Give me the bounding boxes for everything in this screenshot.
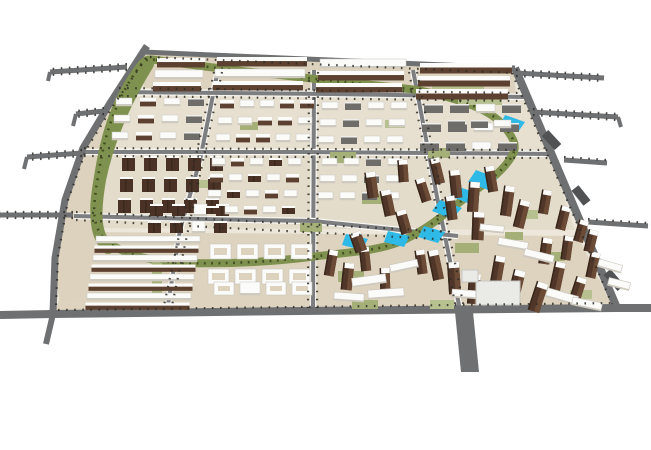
building-shade: [344, 164, 359, 166]
branch-road: [564, 160, 607, 163]
lowrise-roof: [256, 134, 270, 138]
branch-road: [533, 112, 618, 117]
building-shade: [389, 125, 405, 127]
building-shade: [160, 138, 176, 140]
building-shade: [96, 241, 200, 243]
lowrise-roof: [280, 100, 294, 104]
slab-rooftop: [227, 190, 240, 192]
slab-stripe: [219, 223, 220, 233]
courtyard-inner: [214, 248, 227, 255]
slab-building: [144, 156, 157, 171]
building-highlight: [471, 120, 488, 122]
lowrise-facade: [316, 87, 402, 92]
courtyard-inner: [239, 273, 252, 280]
courtyard-inner: [268, 248, 281, 255]
slab-stripe: [274, 160, 275, 166]
lowrise-roof: [138, 115, 154, 119]
lowrise-facade: [286, 178, 299, 183]
slab-building: [120, 177, 133, 192]
slab-stripe: [175, 223, 176, 233]
building-shade: [238, 123, 252, 125]
building-shade: [155, 77, 203, 79]
building-shade: [192, 231, 205, 233]
lowrise-facade: [95, 249, 199, 253]
branch-road: [48, 72, 50, 81]
slab-rooftop: [172, 204, 185, 206]
slab-stripe: [127, 158, 128, 171]
masterplan-svg: [0, 0, 651, 450]
building-highlight: [343, 119, 359, 121]
building-shade: [93, 260, 197, 262]
lowrise-roof: [153, 82, 201, 87]
slab-building: [118, 198, 131, 213]
lowrise-facade: [300, 104, 314, 109]
slab-stripe: [169, 179, 170, 192]
lowrise-roof: [418, 76, 510, 81]
building-shade: [267, 180, 280, 182]
building-shade: [114, 121, 130, 123]
building-shade: [320, 125, 336, 127]
slab-rooftop: [206, 206, 219, 208]
courtyard-inner: [270, 286, 282, 291]
building-highlight: [184, 132, 200, 134]
building-highlight: [186, 115, 202, 117]
slab-rooftop: [140, 198, 153, 200]
building-shade: [208, 196, 221, 198]
building-shade: [364, 142, 380, 144]
slab-stripe: [232, 192, 233, 198]
slab-rooftop: [210, 156, 223, 158]
building-highlight: [422, 123, 441, 125]
building-highlight: [498, 142, 517, 144]
slab-building: [186, 177, 199, 192]
lowrise-roof: [244, 206, 257, 210]
building-shade: [387, 142, 403, 144]
building-shade: [260, 106, 274, 108]
lowrise-roof: [236, 134, 250, 138]
lowrise-facade: [136, 136, 152, 141]
slab-rooftop: [269, 158, 282, 160]
building-highlight: [446, 142, 465, 144]
branch-road: [24, 157, 27, 169]
courtyard-inner: [218, 286, 230, 291]
tower: [467, 182, 480, 213]
building-shade: [240, 106, 254, 108]
lowrise-facade: [258, 121, 272, 126]
lowrise-roof: [286, 174, 299, 178]
building-shade: [164, 104, 180, 106]
courtyard-inner: [212, 273, 225, 280]
building-shade: [494, 126, 511, 128]
building-shade: [225, 212, 238, 214]
building-shade: [340, 198, 355, 200]
lowrise-roof: [265, 190, 278, 194]
building-highlight: [450, 104, 469, 106]
slab-rooftop: [206, 198, 219, 200]
courtyard-inner: [295, 248, 308, 255]
slab-rooftop: [144, 156, 157, 158]
branch-road: [588, 222, 648, 226]
lowrise-roof: [300, 100, 314, 104]
slab-stripe: [153, 223, 154, 233]
branch-road: [618, 117, 621, 127]
slab-rooftop: [248, 174, 261, 176]
slab-stripe: [125, 179, 126, 192]
building-shade: [218, 123, 232, 125]
slab-stripe: [149, 158, 150, 171]
slab-building: [142, 177, 155, 192]
lowrise-facade: [236, 138, 250, 143]
lowrise-roof: [140, 98, 156, 102]
lowrise-facade: [140, 102, 156, 107]
courtyard-inner: [266, 273, 279, 280]
lowrise-facade: [318, 75, 404, 80]
courtyard-inner: [296, 286, 308, 291]
building-shade: [263, 212, 276, 214]
lowrise-roof: [316, 83, 402, 88]
building-shade: [112, 138, 128, 140]
building-shade: [246, 196, 259, 198]
building-shade: [212, 164, 225, 166]
slab-stripe: [145, 200, 146, 213]
building-shade: [229, 180, 242, 182]
courtyard-inner: [293, 273, 306, 280]
slab-rooftop: [148, 221, 161, 223]
slab-rooftop: [282, 206, 295, 208]
slab-rooftop: [142, 177, 155, 179]
branch-road: [76, 111, 104, 114]
building-shade: [391, 108, 407, 110]
lowrise-roof: [213, 81, 303, 86]
building-shade: [342, 181, 357, 183]
branch-road: [516, 73, 604, 78]
lowrise-facade: [138, 119, 154, 124]
building-shade: [296, 140, 310, 142]
building-shade: [474, 130, 493, 132]
branch-road: [46, 314, 53, 344]
slab-rooftop: [118, 198, 131, 200]
slab-rooftop: [166, 156, 179, 158]
lowrise-facade: [157, 62, 205, 67]
building-shade: [284, 196, 297, 198]
lowrise-facade: [210, 178, 223, 183]
slab-stripe: [171, 158, 172, 171]
branch-road: [73, 114, 76, 126]
building-shade: [194, 214, 207, 216]
building-shade: [322, 108, 338, 110]
street: [82, 152, 550, 154]
lowrise-facade: [416, 94, 508, 100]
lowrise-roof: [157, 58, 205, 63]
building-highlight: [502, 104, 521, 106]
slab-rooftop: [164, 177, 177, 179]
lawn-patch: [455, 243, 479, 253]
building-shade: [298, 123, 312, 125]
white-slab: [334, 292, 364, 302]
building-highlight: [345, 102, 361, 104]
building-shade: [215, 76, 305, 78]
slab-rooftop: [162, 198, 175, 200]
slab-building: [188, 156, 201, 171]
building-shade: [276, 140, 290, 142]
slab-stripe: [253, 176, 254, 182]
lowrise-roof: [231, 158, 244, 162]
building-shade: [368, 108, 384, 110]
slab-building: [164, 177, 177, 192]
building-shade: [216, 140, 230, 142]
slab-rooftop: [150, 204, 163, 206]
white-slab: [452, 289, 478, 299]
lowrise-roof: [258, 117, 272, 121]
slab-stripe: [221, 206, 222, 216]
lowrise-facade: [220, 104, 234, 109]
lowrise-facade: [86, 306, 190, 310]
lowrise-facade: [265, 194, 278, 199]
slab-rooftop: [214, 221, 227, 223]
lowrise-roof: [210, 174, 223, 178]
lowrise-facade: [217, 61, 307, 66]
slab-stripe: [155, 206, 156, 216]
building-highlight: [424, 104, 443, 106]
lowrise-facade: [278, 121, 292, 126]
courtyard-inner: [241, 248, 254, 255]
slab-stripe: [123, 200, 124, 213]
building-shade: [116, 104, 132, 106]
building-shade: [162, 121, 178, 123]
lowrise-roof: [217, 57, 307, 62]
lowrise-roof: [220, 100, 234, 104]
lowrise-roof: [86, 303, 190, 307]
tower-roof: [447, 262, 459, 269]
lowrise-roof: [136, 132, 152, 136]
building-shade: [288, 164, 301, 166]
building-shade: [240, 293, 260, 295]
slab-rooftop: [120, 177, 133, 179]
slab-stripe: [189, 200, 190, 213]
building-highlight: [420, 142, 439, 144]
lowrise-roof: [318, 71, 404, 76]
slab-building: [166, 156, 179, 171]
building-shade: [476, 111, 495, 113]
masterplan-rendering: [0, 0, 651, 450]
building-shade: [320, 181, 335, 183]
tower: [397, 160, 409, 183]
building-shade: [366, 125, 382, 127]
lowrise-facade: [280, 104, 294, 109]
building-highlight: [448, 120, 465, 122]
road-dark-segment: [575, 188, 587, 203]
lowrise-facade: [418, 81, 510, 87]
building-highlight: [188, 98, 204, 100]
slab-building: [122, 156, 135, 171]
lowrise-roof: [95, 246, 199, 250]
lawn-patch: [430, 300, 454, 309]
building-shade: [318, 198, 333, 200]
lowrise-roof: [278, 117, 292, 121]
tower-roof: [472, 212, 484, 218]
slab-stripe: [191, 179, 192, 192]
building-shade: [322, 164, 337, 166]
slab-stripe: [211, 208, 212, 214]
slab-rooftop: [186, 177, 199, 179]
slab-stripe: [147, 179, 148, 192]
building-shade: [318, 142, 334, 144]
slab-stripe: [287, 208, 288, 214]
lowrise-facade: [231, 162, 244, 167]
slab-stripe: [177, 206, 178, 216]
road-stub: [455, 312, 479, 372]
lowrise-facade: [256, 138, 270, 143]
lowrise-roof: [420, 63, 512, 68]
lowrise-roof: [92, 265, 196, 269]
building-shade: [87, 298, 191, 300]
flat-hall-roof: [476, 281, 520, 305]
building-shade: [250, 164, 263, 166]
flat-hall-roof: [462, 270, 478, 282]
slab-stripe: [167, 200, 168, 213]
building-highlight: [341, 136, 357, 138]
slab-rooftop: [216, 204, 229, 206]
lowrise-roof: [416, 89, 508, 94]
lowrise-facade: [244, 210, 257, 215]
